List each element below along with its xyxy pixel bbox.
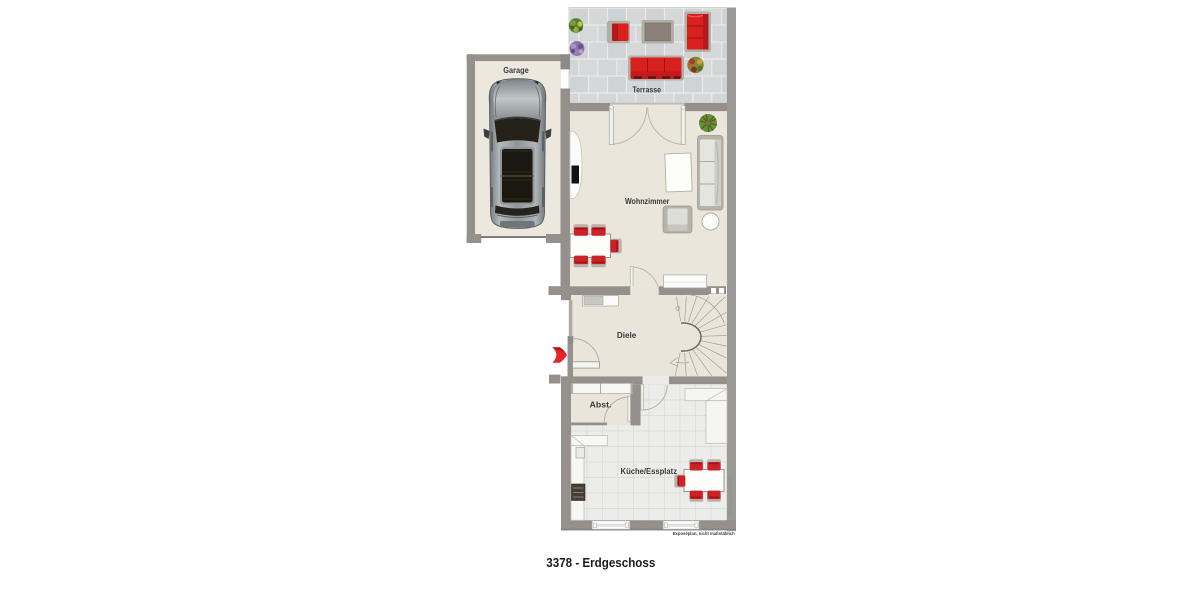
- svg-text:Wohnzimmer: Wohnzimmer: [625, 197, 670, 206]
- svg-text:Exposéplan, nicht maßstäblich: Exposéplan, nicht maßstäblich: [673, 531, 735, 536]
- svg-text:3378 - Erdgeschoss: 3378 - Erdgeschoss: [546, 556, 655, 570]
- svg-text:© Exposéplan GmbH: © Exposéplan GmbH: [728, 476, 733, 515]
- svg-text:Diele: Diele: [617, 331, 637, 340]
- svg-text:Abst.: Abst.: [590, 401, 612, 410]
- svg-text:Garage: Garage: [503, 66, 529, 75]
- svg-text:Terrasse: Terrasse: [632, 86, 661, 95]
- svg-text:Küche/Essplatz: Küche/Essplatz: [621, 467, 678, 476]
